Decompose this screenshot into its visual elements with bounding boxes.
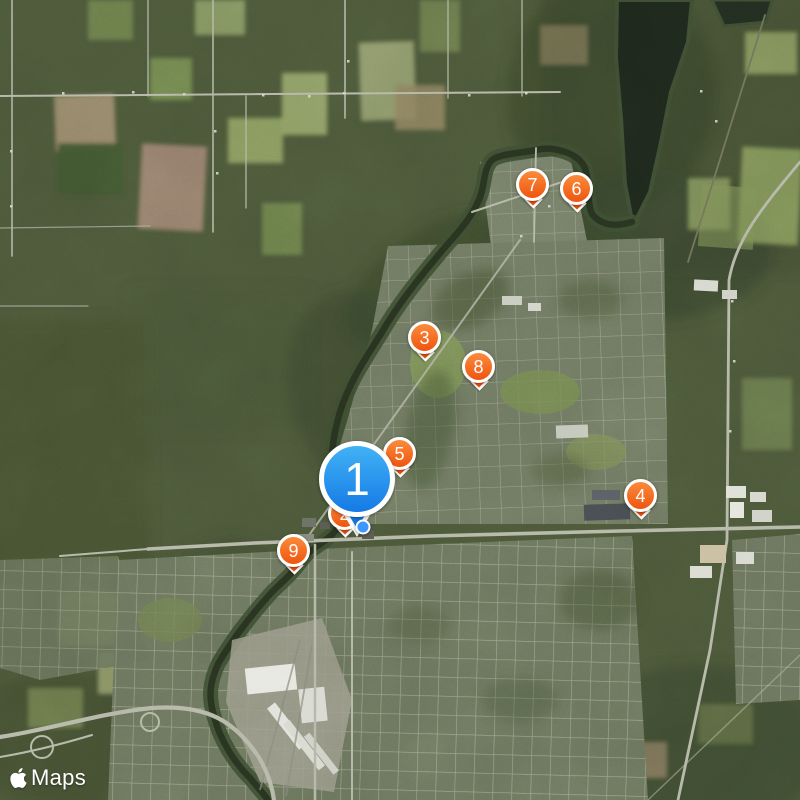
marker-bubble: 3 xyxy=(408,321,441,354)
texture-grain xyxy=(0,0,800,800)
marker-number: 7 xyxy=(527,176,537,194)
marker-number: 4 xyxy=(635,487,645,505)
satellite-map-image[interactable] xyxy=(0,0,800,800)
marker-number: 8 xyxy=(473,358,483,376)
marker-number: 3 xyxy=(419,329,429,347)
apple-maps-logo: Maps xyxy=(10,765,86,791)
marker-bubble: 1 xyxy=(319,441,395,517)
marker-bubble: 7 xyxy=(516,168,549,201)
user-location-dot xyxy=(356,520,371,535)
marker-number: 1 xyxy=(344,456,370,502)
marker-bubble: 4 xyxy=(624,479,657,512)
map-viewport[interactable]: 763854921 Maps xyxy=(0,0,800,800)
marker-number: 9 xyxy=(288,542,298,560)
maps-wordmark: Maps xyxy=(31,765,86,791)
marker-bubble: 9 xyxy=(277,534,310,567)
apple-logo-icon xyxy=(10,768,27,788)
marker-bubble: 8 xyxy=(462,350,495,383)
marker-number: 6 xyxy=(571,180,581,198)
marker-bubble: 6 xyxy=(560,172,593,205)
marker-number: 5 xyxy=(394,445,404,463)
